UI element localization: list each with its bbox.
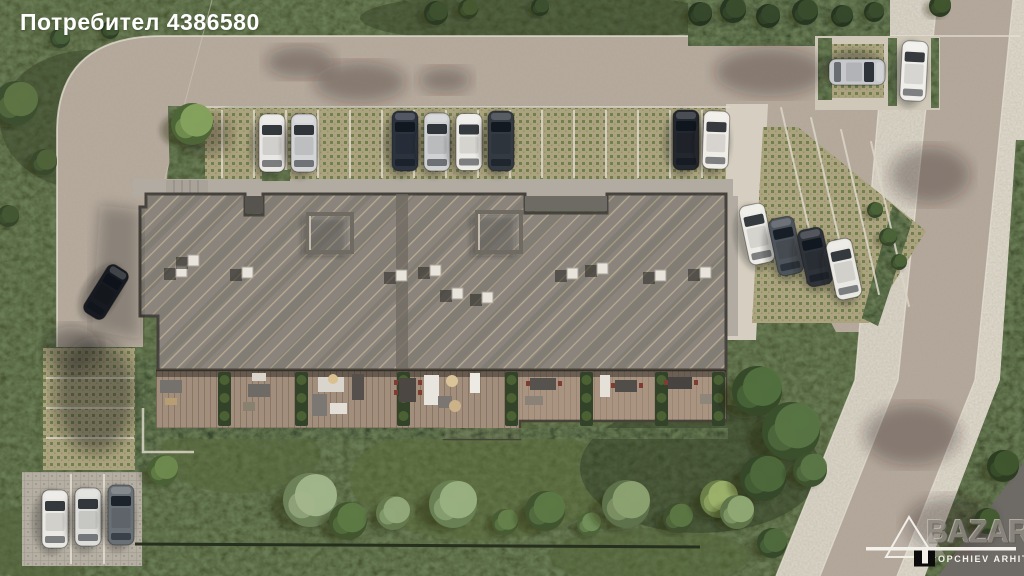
roof-overhang-shadow: [155, 370, 726, 377]
terrace-planter: [218, 372, 231, 426]
entrance-stairs: [166, 180, 208, 194]
roof-skylight: [471, 212, 521, 256]
hedge-below-terrace: [150, 428, 728, 439]
car: [447, 114, 483, 177]
logo-firm-text: OPCHIEV ARHITEKTI: [938, 554, 1024, 564]
roof-seam: [396, 194, 408, 370]
car: [479, 111, 515, 177]
roof-shade-stripes: [140, 194, 726, 370]
terrace-planter: [505, 372, 518, 426]
terrace-planter: [580, 372, 593, 426]
entrance-recess-right: [525, 196, 607, 211]
car: [66, 488, 102, 552]
site-render: Потребител 4386580 BAZAR OPCHIEV ARHITEK…: [0, 0, 1024, 576]
side-walkway: [726, 196, 738, 336]
terrace-planter: [295, 372, 308, 426]
car: [99, 485, 135, 551]
apartment-building: [133, 170, 738, 370]
car: [823, 50, 885, 86]
car: [383, 111, 419, 177]
user-watermark: Потребител 4386580: [20, 9, 260, 36]
logo-t-bar: [866, 547, 1016, 551]
entrance-recess-left: [245, 196, 263, 213]
logo-mark: OPCHIEV ARHITEKTI: [864, 510, 1024, 576]
car: [250, 114, 286, 178]
logo-t-stem: [922, 551, 928, 564]
car: [415, 113, 451, 177]
car: [282, 114, 318, 178]
roof-skylight: [302, 214, 352, 256]
car: [33, 490, 69, 554]
architect-logo: BAZAR OPCHIEV ARHITEKTI: [864, 510, 1024, 576]
scene-canvas: [0, 0, 1024, 576]
